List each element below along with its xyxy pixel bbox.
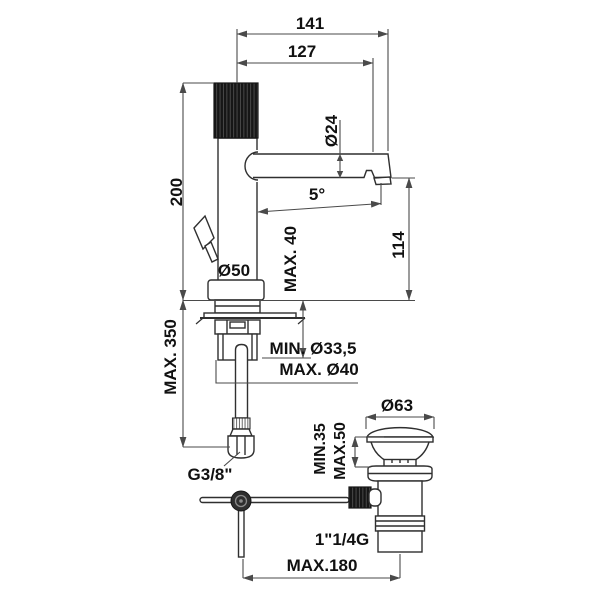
label-basin-max: MAX.50 [332,422,349,480]
drain-cap-lip [367,437,433,442]
drain-thread-band [376,516,425,531]
label-basin-min: MIN.35 [312,423,329,475]
base-cylinder [208,280,264,300]
dim-line-angle [258,204,381,213]
nut-top-facet [230,322,245,328]
label-hole-max: MAX. Ø40 [279,360,358,379]
drain-funnel-left [371,442,384,460]
drain-cap-dome [367,428,433,437]
hose-nut [228,436,254,458]
lever-stem [205,242,218,262]
label-141: 141 [296,14,324,33]
popup-rod-knob-dot [239,499,243,503]
drain-lower-body [378,531,422,552]
label-d50: Ø50 [218,261,250,280]
aerator-tip [374,177,391,185]
drain-side-knurl [349,487,371,508]
label-d24: Ø24 [322,114,341,147]
knurled-handle [214,83,258,138]
label-supply-thread: G3/8" [188,465,233,484]
label-200: 200 [167,178,186,206]
hose-braid [233,418,251,429]
drain-side-collar [369,489,381,506]
label-114: 114 [389,231,408,259]
supply-hose [236,345,248,419]
label-max180: MAX.180 [287,556,358,575]
label-max350: MAX. 350 [161,319,180,395]
popup-rod-horizontal [200,498,349,503]
label-max40: MAX. 40 [281,226,300,292]
label-drain-thread: 1"1/4G [315,530,369,549]
label-127: 127 [288,42,316,61]
technical-drawing-canvas: 141 127 Ø24 200 5° 114 Ø50 MAX. 40 MAX. … [0,0,600,600]
popup-rod-vertical [239,509,245,557]
label-d63: Ø63 [381,396,413,415]
spout-fill [253,153,391,178]
faucet-dimension-drawing: 141 127 Ø24 200 5° 114 Ø50 MAX. 40 MAX. … [0,0,600,600]
drain-funnel-right [416,442,429,460]
label-angle-5: 5° [309,185,325,204]
drain-upper-body [378,481,422,516]
hose-nut-collar [230,429,252,436]
label-hole-min: MIN. Ø33,5 [270,339,357,358]
deck-hatch-left [196,318,203,324]
